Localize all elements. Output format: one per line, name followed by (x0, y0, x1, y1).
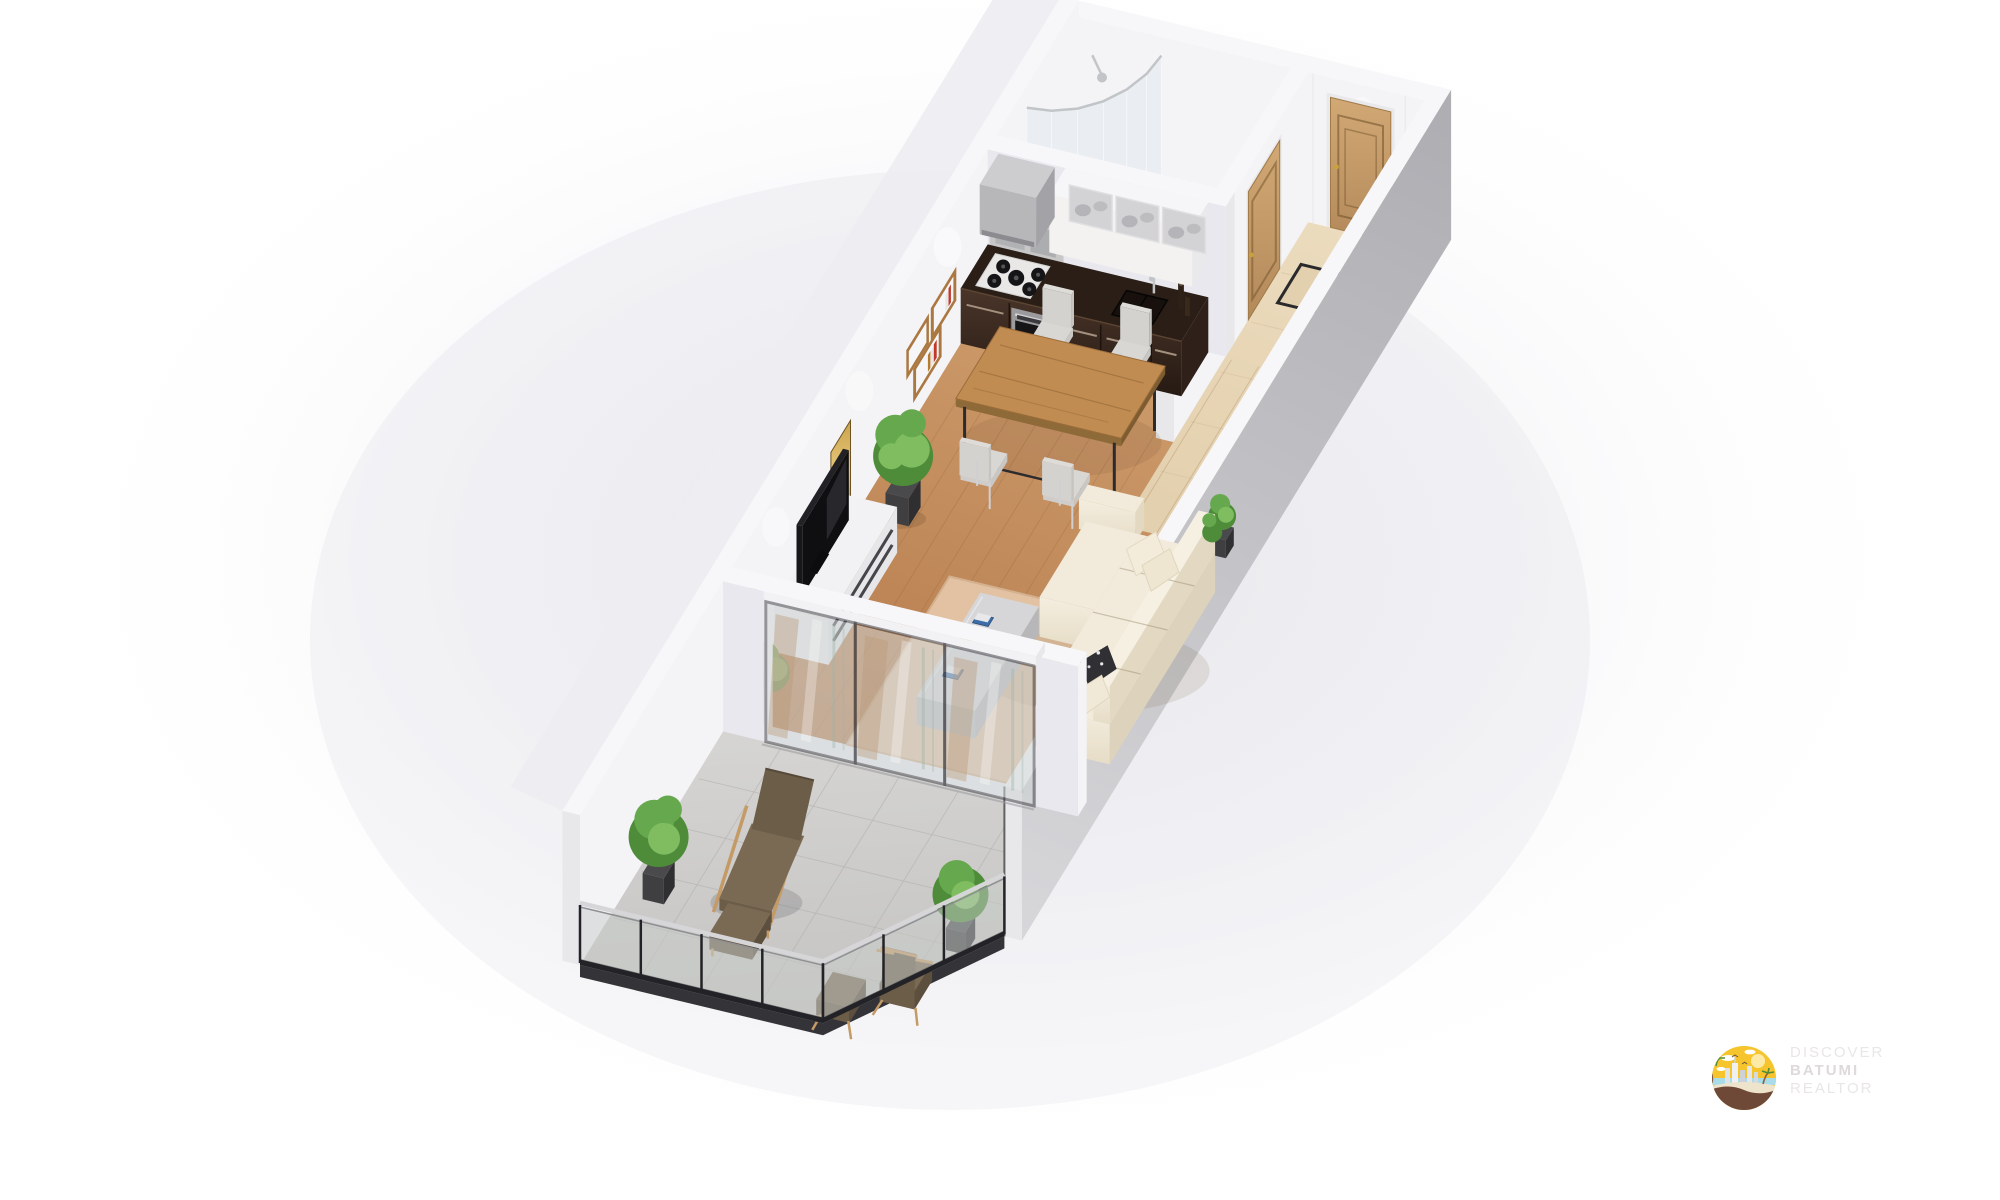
watermark-line-batumi: BATUMI (1790, 1062, 1859, 1079)
brand-logo-icon (1703, 1046, 1778, 1112)
range-hood (980, 154, 1055, 248)
watermark-line-realtor: REALTOR (1790, 1080, 1873, 1097)
floorplan-scene (10, 0, 1970, 1180)
logo-sun-icon (1751, 1054, 1765, 1068)
apartment-3d-render: DISCOVER BATUMI REALTOR (0, 0, 2000, 1200)
watermark-line-discover: DISCOVER (1790, 1044, 1884, 1061)
scene-svg: DISCOVER BATUMI REALTOR (0, 0, 2000, 1200)
brand-watermark: DISCOVER BATUMI REALTOR (1703, 1044, 1884, 1112)
logo-cliff (1703, 1068, 1713, 1090)
